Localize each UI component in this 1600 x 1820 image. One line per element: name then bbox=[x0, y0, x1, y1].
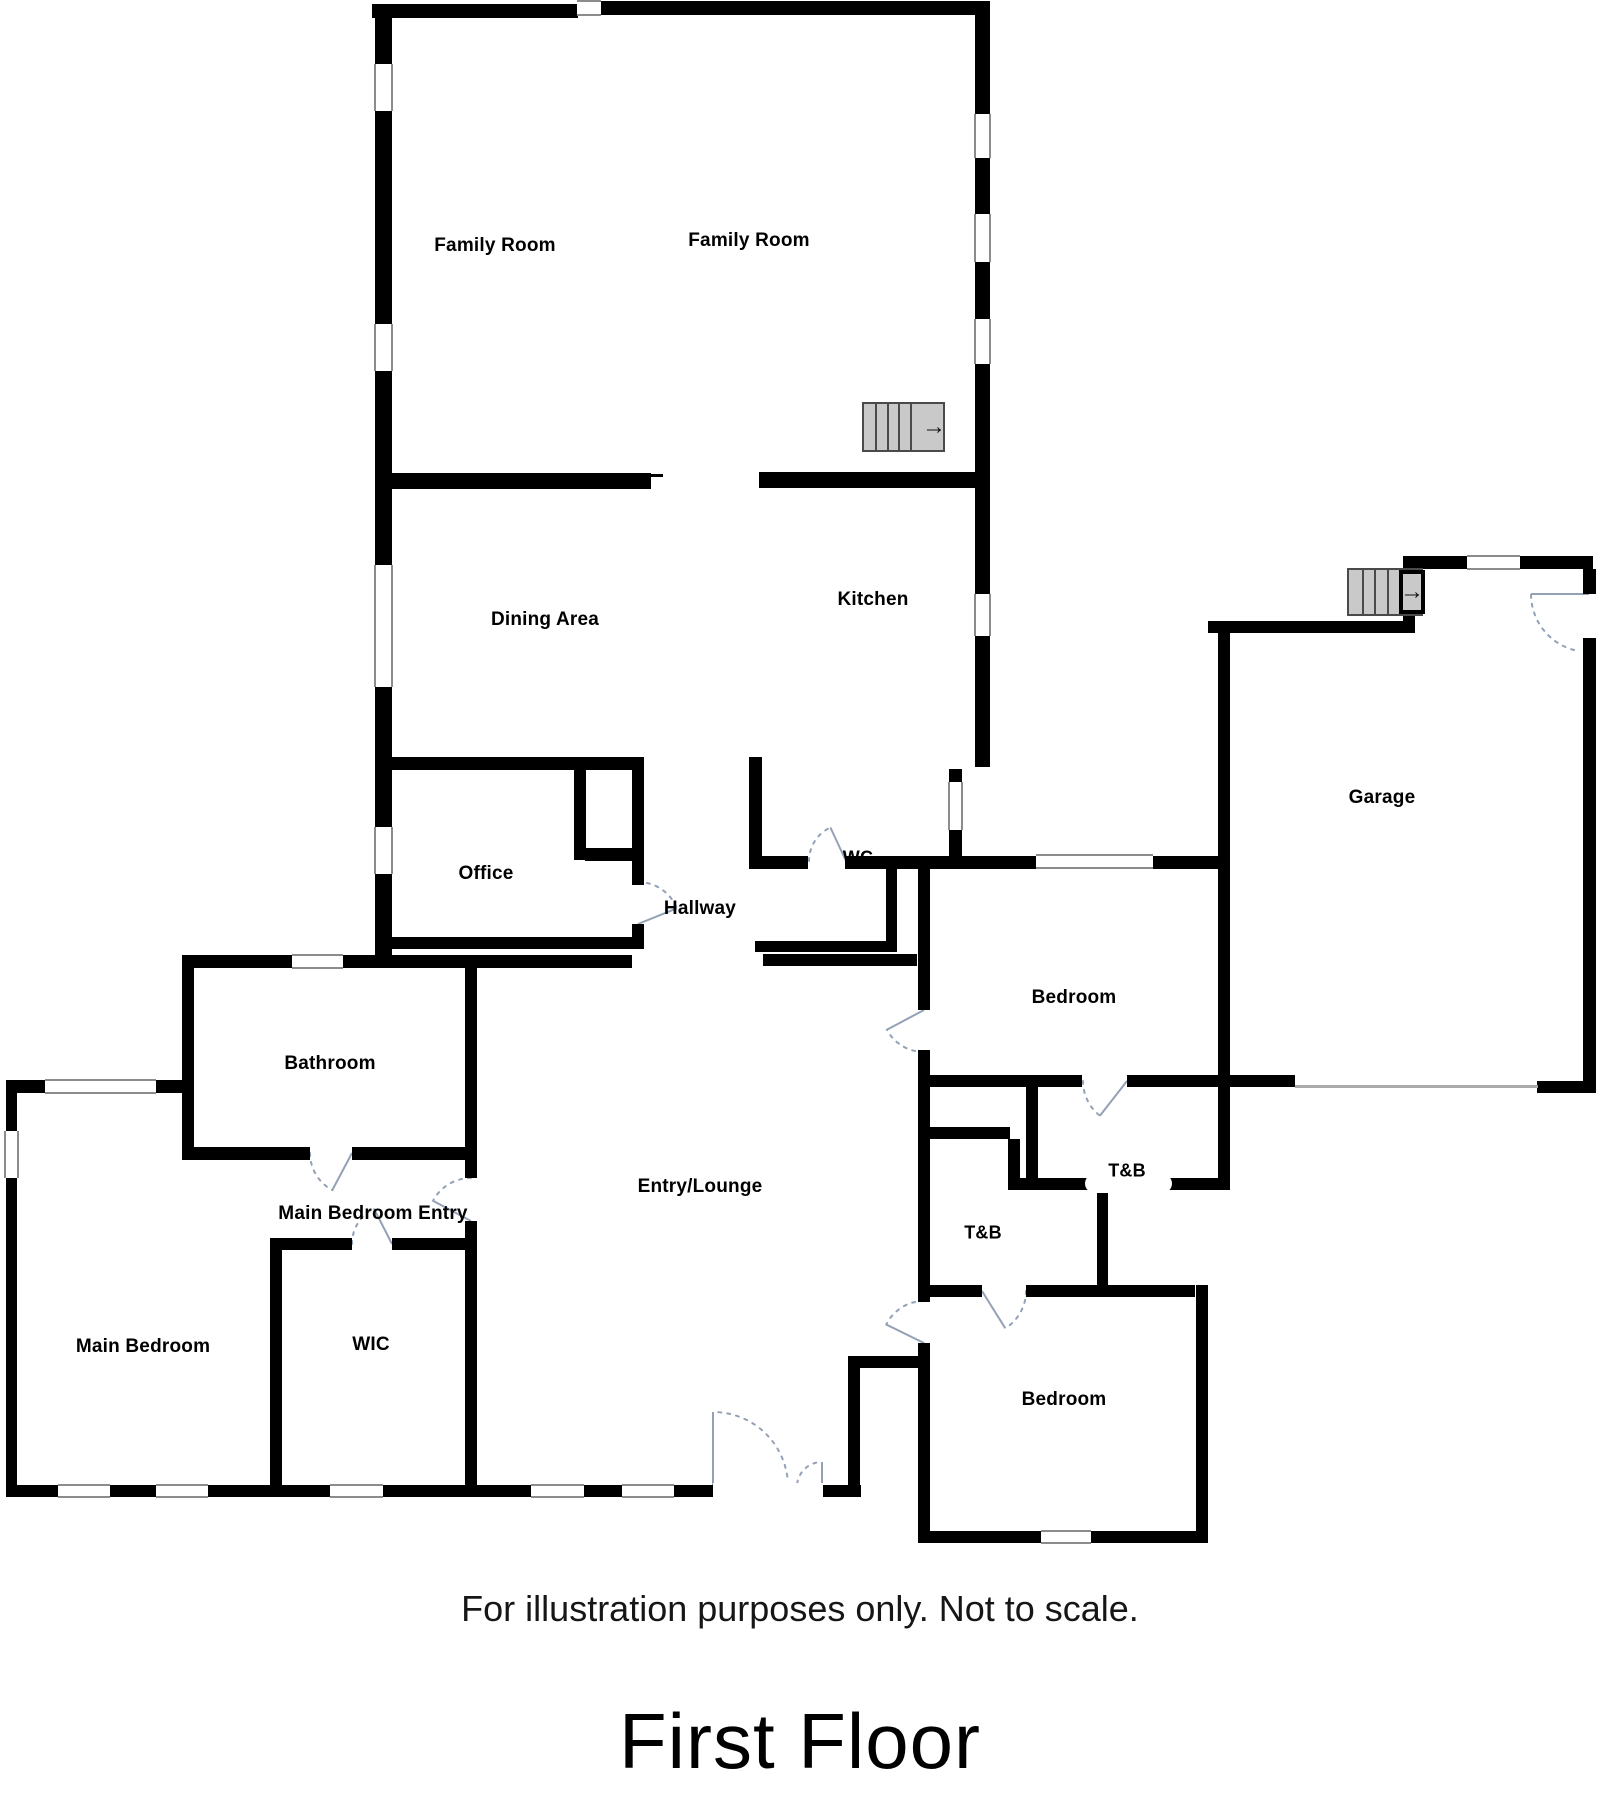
stair-tread-line bbox=[1374, 570, 1376, 614]
garage-door-line bbox=[651, 474, 663, 477]
stairs-icon: → bbox=[862, 402, 945, 452]
window bbox=[374, 64, 393, 111]
room-label-bedroom-upper: Bedroom bbox=[1032, 987, 1117, 1009]
tb-lower-door-arc bbox=[1005, 1291, 1026, 1328]
bathroom-door-leaf bbox=[332, 1153, 352, 1190]
window bbox=[531, 1484, 584, 1498]
room-label-tb-upper: T&B bbox=[1108, 1161, 1146, 1182]
window bbox=[374, 324, 393, 371]
wall bbox=[1097, 1190, 1108, 1297]
window bbox=[45, 1079, 156, 1094]
room-label-wc: WC bbox=[843, 848, 873, 869]
bedroom-lower-door-arc bbox=[886, 1301, 924, 1325]
window bbox=[948, 782, 963, 830]
wall bbox=[762, 856, 808, 869]
room-label-office: Office bbox=[458, 863, 513, 885]
window bbox=[156, 1484, 208, 1498]
wall bbox=[465, 955, 477, 1178]
wall bbox=[185, 955, 632, 968]
window bbox=[330, 1484, 383, 1498]
stair-tread-line bbox=[1362, 570, 1364, 614]
room-label-wic: WIC bbox=[352, 1334, 390, 1356]
wall bbox=[930, 1075, 1082, 1087]
room-label-main-bedroom: Main Bedroom bbox=[76, 1336, 210, 1358]
door-opening bbox=[713, 1483, 823, 1499]
window bbox=[4, 1131, 19, 1178]
room-label-garage: Garage bbox=[1349, 787, 1416, 809]
window bbox=[1041, 1530, 1091, 1544]
window bbox=[577, 0, 601, 16]
arrow-right-icon: → bbox=[1400, 580, 1424, 604]
wall bbox=[601, 1, 990, 15]
wall bbox=[848, 1356, 918, 1368]
wall bbox=[763, 954, 917, 966]
room-label-family-room-left: Family Room bbox=[434, 235, 556, 257]
wall bbox=[848, 1368, 860, 1486]
tb-lower-door-leaf bbox=[982, 1291, 1005, 1328]
wall bbox=[632, 757, 644, 885]
room-label-dining-area: Dining Area bbox=[491, 609, 599, 631]
window bbox=[1467, 555, 1520, 570]
arrow-right-icon: → bbox=[922, 415, 946, 439]
stair-arrow-zone: → bbox=[1399, 570, 1425, 614]
window bbox=[974, 214, 991, 262]
wall bbox=[392, 1238, 465, 1250]
room-label-main-bedroom-entry: Main Bedroom Entry bbox=[278, 1203, 467, 1225]
wall bbox=[749, 757, 762, 869]
wall bbox=[1026, 1285, 1195, 1297]
wall bbox=[352, 1147, 477, 1160]
wall bbox=[1583, 569, 1596, 594]
wall bbox=[193, 1147, 310, 1160]
window bbox=[622, 1484, 674, 1498]
wall bbox=[465, 1221, 477, 1497]
wall bbox=[372, 4, 578, 18]
wall bbox=[886, 868, 897, 952]
window bbox=[292, 954, 343, 969]
disclaimer-text: For illustration purposes only. Not to s… bbox=[0, 1588, 1600, 1630]
wall bbox=[918, 856, 930, 1010]
window bbox=[58, 1484, 110, 1498]
bedroom-upper-door-arc bbox=[887, 1030, 924, 1052]
stair-tread-line bbox=[875, 404, 877, 450]
wall bbox=[1208, 621, 1415, 633]
garage-door-line bbox=[1295, 1085, 1538, 1088]
wall bbox=[1218, 627, 1230, 1190]
room-label-hallway: Hallway bbox=[664, 898, 736, 920]
tb-upper-door-leaf bbox=[1100, 1081, 1127, 1116]
front-door-right-arc bbox=[797, 1462, 822, 1484]
wall bbox=[1537, 1081, 1596, 1093]
stair-tread-line bbox=[898, 404, 900, 450]
wall bbox=[270, 1238, 282, 1486]
window bbox=[974, 114, 991, 158]
wc-door-arc bbox=[809, 828, 830, 862]
wall bbox=[759, 472, 988, 488]
floor-plan: For illustration purposes only. Not to s… bbox=[0, 0, 1600, 1820]
bathroom-door-arc bbox=[310, 1153, 332, 1190]
window bbox=[974, 319, 991, 364]
wall bbox=[755, 941, 887, 952]
window bbox=[1036, 854, 1153, 869]
wall bbox=[1583, 638, 1596, 1093]
wall bbox=[1196, 1285, 1208, 1543]
stair-tread-line bbox=[910, 404, 912, 450]
window bbox=[974, 594, 991, 636]
wall bbox=[845, 856, 1037, 869]
wall bbox=[389, 473, 651, 489]
wall bbox=[1026, 1087, 1038, 1180]
stairs-icon: → bbox=[1347, 568, 1423, 616]
bedroom-upper-door-leaf bbox=[887, 1010, 924, 1030]
bedroom-lower-door-leaf bbox=[886, 1325, 924, 1343]
room-label-tb-lower: T&B bbox=[964, 1223, 1002, 1244]
wall bbox=[930, 1127, 1010, 1139]
stair-tread-line bbox=[1387, 570, 1389, 614]
wall bbox=[383, 937, 644, 949]
window bbox=[374, 565, 393, 687]
wall bbox=[918, 1343, 930, 1543]
stair-tread-line bbox=[887, 404, 889, 450]
wall bbox=[930, 1285, 982, 1297]
door-swing-overlay bbox=[0, 0, 1600, 1820]
tb-upper-door-arc bbox=[1083, 1081, 1100, 1116]
wall bbox=[182, 955, 194, 1160]
stair-arrow-zone: → bbox=[921, 404, 947, 450]
window bbox=[374, 827, 393, 874]
garage-side-door-arc bbox=[1531, 594, 1574, 650]
front-door-left-arc bbox=[713, 1412, 787, 1477]
wall bbox=[1232, 1075, 1295, 1087]
main-bedroom-entry-door-arc bbox=[433, 1178, 471, 1201]
wall bbox=[383, 757, 644, 770]
room-label-bedroom-lower: Bedroom bbox=[1022, 1389, 1107, 1411]
floor-title: First Floor bbox=[0, 1696, 1600, 1787]
room-label-kitchen: Kitchen bbox=[837, 589, 908, 611]
wall bbox=[282, 1238, 352, 1250]
room-label-family-room-right: Family Room bbox=[688, 230, 810, 252]
wall bbox=[918, 1050, 930, 1302]
room-label-entry-lounge: Entry/Lounge bbox=[638, 1176, 763, 1198]
room-label-bathroom: Bathroom bbox=[284, 1053, 375, 1075]
wall bbox=[574, 767, 586, 860]
